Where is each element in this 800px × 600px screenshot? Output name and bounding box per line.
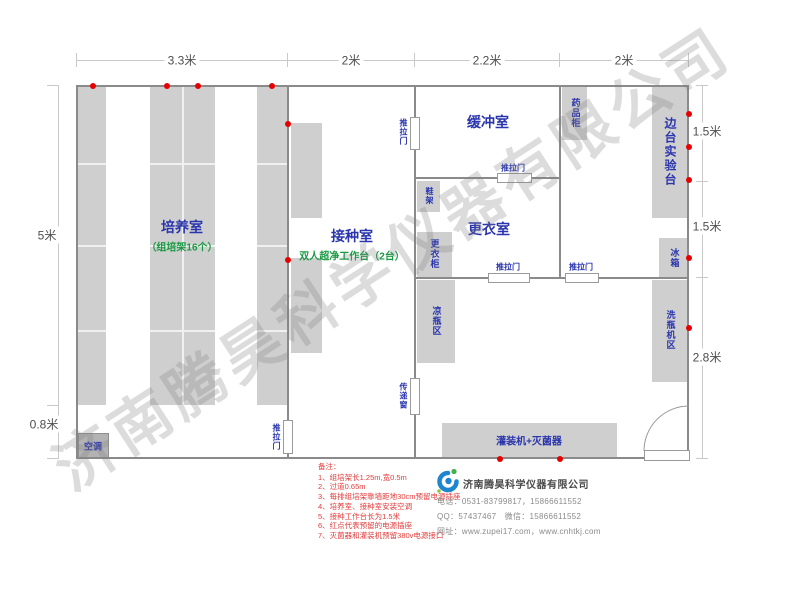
dim-tick [696,277,708,278]
dim-label-top-3: 2.2米 [470,52,505,69]
sliding-door [488,273,530,283]
company-name: 济南腾昊科学仪器有限公司 [463,476,589,491]
room-label-buffer: 缓冲室 [467,112,509,132]
dim-tick [47,405,59,406]
fridge-label: 冰箱 [670,248,679,268]
dim-tick [559,53,560,67]
power-socket-dot [686,144,692,150]
transfer-window [410,378,420,415]
dim-label-top-2: 2米 [339,52,364,69]
filling-machine-sterilizer-label: 灌装机+灭菌器 [496,433,562,448]
side-lab-bench-label: 边台实验台 [664,117,676,187]
dim-tick [414,53,415,67]
power-socket-dot [557,456,563,462]
sliding-door-label: 推拉门 [496,262,520,273]
wardrobe-label: 更衣柜 [430,239,439,269]
shoe-rack-label: 鞋架 [425,187,433,205]
sliding-door-label: 推拉门 [569,262,593,273]
wall-outer-left [76,85,78,459]
power-socket-dot [90,83,96,89]
company-phone: 电话：0531-83799817，15866611552 [437,496,582,507]
dim-tick [696,181,708,182]
culture-rack-column [257,87,287,405]
power-socket-dot [269,83,275,89]
dim-label-right-3: 2.8米 [690,349,725,366]
clean-bench [291,123,322,218]
power-socket-dot [686,111,692,117]
company-logo-icon [436,468,460,494]
power-socket-dot [285,121,291,127]
power-socket-dot [195,83,201,89]
sliding-door-label: 推拉门 [501,163,525,174]
floor-plan-canvas: 3.3米 2米 2.2米 2米 5米 0.8米 1.5米 1.5米 2.8米 [0,0,800,600]
wall-dressing-east [559,85,561,279]
rack-shelf-divider [150,330,215,332]
company-website: 网址：www.zupei17.com，www.cnhtkj.com [437,526,601,537]
entrance-door-swing-arc [642,404,692,454]
rack-shelf-divider [257,163,287,165]
wall-buffer-dressing [414,177,561,179]
power-socket-dot [285,257,291,263]
clean-bench [291,258,322,353]
room-sublabel-inoculation: 双人超净工作台（2台） [299,248,405,263]
dim-label-right-2: 1.5米 [690,218,725,235]
sliding-door-label: 推拉门 [272,424,280,451]
rack-shelf-divider [257,330,287,332]
power-socket-dot [686,325,692,331]
air-conditioner-label: 空调 [84,440,102,453]
wall-outer-right [687,85,689,459]
sliding-door [283,420,293,454]
culture-rack-column [78,87,106,405]
dim-label-top-4: 2米 [612,52,637,69]
power-socket-dot [686,177,692,183]
rack-shelf-divider [78,245,106,247]
power-socket-dot [686,255,692,261]
bottle-washing-area-label: 洗瓶机区 [666,310,675,350]
dim-tick [688,53,689,67]
dim-label-right-1: 1.5米 [690,123,725,140]
dim-tick [47,85,59,86]
wall-dressing-south [414,277,689,279]
room-label-inoculation: 接种室 [331,226,373,246]
dim-tick [287,53,288,67]
room-label-cultivation: 培养室 [161,217,203,237]
dim-label-left-1: 5米 [35,227,60,244]
dim-tick [47,458,59,459]
dim-tick [696,458,708,459]
bottle-cooling-area-label: 凉瓶区 [432,306,441,336]
room-sublabel-cultivation: （组培架16个） [146,239,217,254]
power-socket-dot [497,456,503,462]
transfer-window-label: 传递窗 [399,383,407,410]
dim-label-left-2: 0.8米 [27,416,62,433]
room-label-dressing: 更衣室 [468,219,510,239]
rack-shelf-divider [78,330,106,332]
dim-label-top-1: 3.3米 [165,52,200,69]
dim-tick [696,85,708,86]
dim-line-right [702,85,703,458]
rack-shelf-divider [257,245,287,247]
company-qq-wechat: QQ：57437467 微信：15866611552 [437,511,581,522]
sliding-door [497,173,532,183]
sliding-door [410,117,420,150]
power-socket-dot [164,83,170,89]
dim-line-left [58,85,59,458]
sliding-door-label: 推拉门 [399,119,407,146]
sliding-door [565,273,599,283]
entrance-door-panel [644,450,690,461]
wall-cultivation-inoculation [287,85,289,459]
medicine-cabinet-label: 药品柜 [571,98,580,128]
dim-tick [76,53,77,67]
rack-shelf-divider [150,163,215,165]
rack-shelf-divider [78,163,106,165]
